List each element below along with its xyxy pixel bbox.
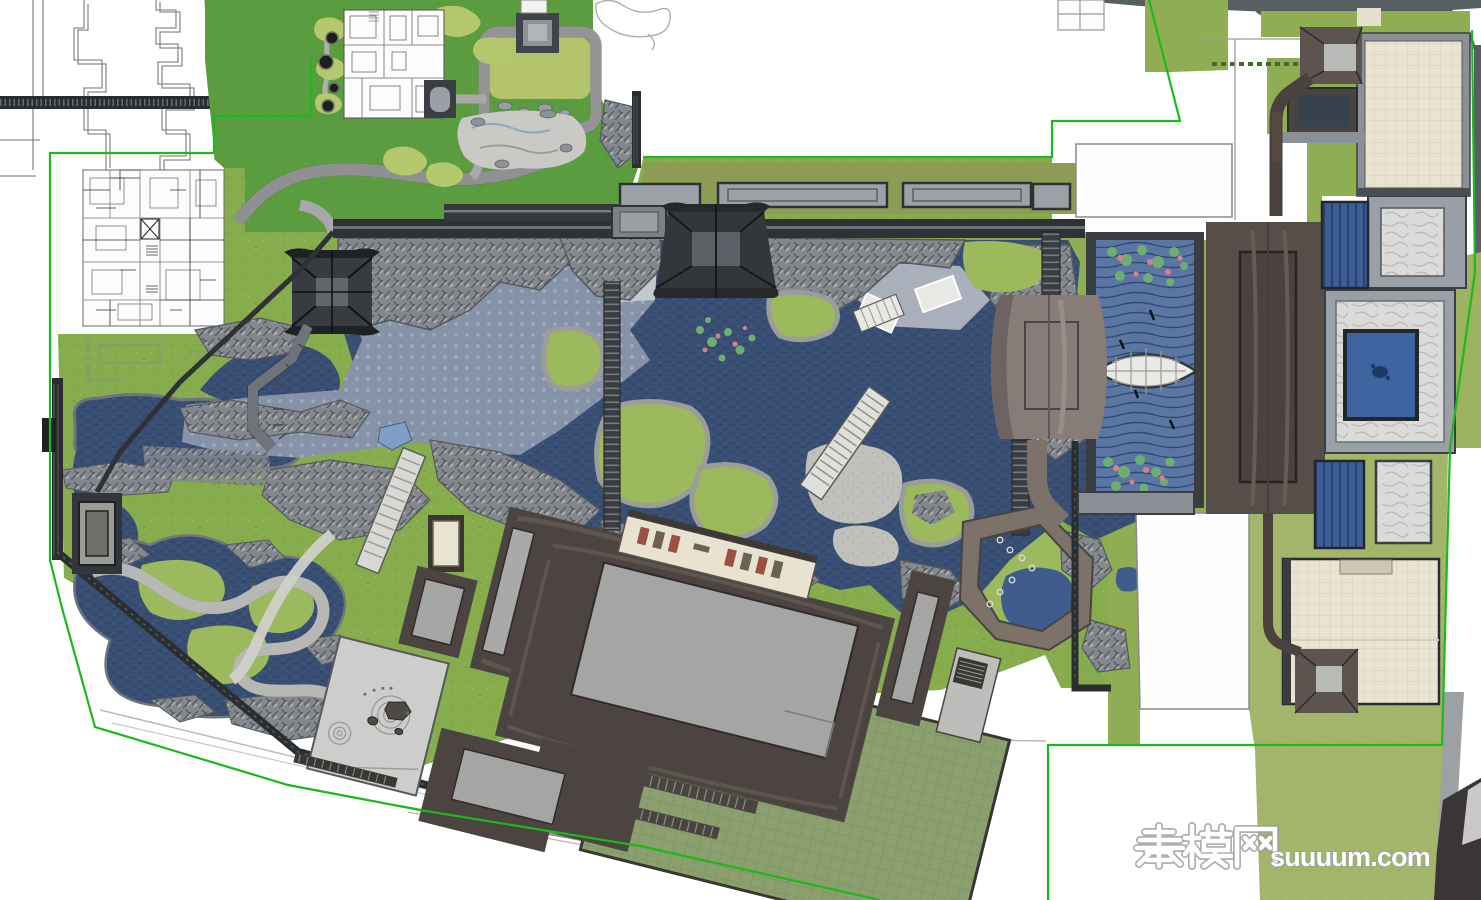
svg-text:suuuum.com: suuuum.com: [1270, 842, 1430, 872]
